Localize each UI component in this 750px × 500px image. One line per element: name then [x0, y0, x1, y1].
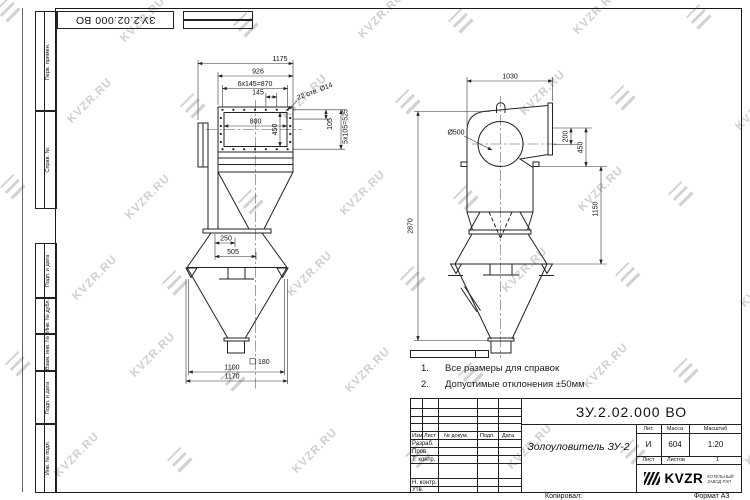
margin-label: Перв. примен.	[45, 43, 51, 80]
sheets-value: 1	[716, 457, 719, 463]
grid-line	[411, 408, 521, 409]
col-izm: Изм.	[412, 433, 424, 439]
scale-label: Масштаб	[689, 424, 742, 433]
title-block-extension	[410, 350, 489, 358]
logo-subtitle: КОТЕЛЬНЫЙ ЗАВОД РЭП	[707, 474, 733, 484]
col-podp: Подп.	[480, 433, 495, 439]
logo-text: KVZR	[664, 471, 703, 486]
row-t-kontr: Т. контр.	[412, 457, 435, 463]
note-1: 1.Все размеры для справок	[421, 363, 559, 374]
note-number: 1.	[421, 363, 445, 374]
row-utv: Утв.	[412, 487, 423, 493]
margin-box-vzam-inv: Взам. инв. №	[35, 333, 57, 372]
lit-value: И	[636, 433, 661, 456]
row-n-kontr: Н. контр.	[412, 480, 437, 486]
product-name: Золоуловитель ЗУ-2	[521, 424, 636, 469]
note-number: 2.	[421, 379, 445, 390]
note-2: 2.Допустимые отклонения ±50мм	[421, 379, 585, 390]
grid-line	[411, 486, 521, 487]
margin-box-perv-primen: Перв. примен.	[35, 11, 57, 112]
drawing-sheet: KVZR.RUKVZR.RUKVZR.RUKVZR.RUKVZR.RUKVZR.…	[0, 0, 750, 500]
company-logo: KVZR КОТЕЛЬНЫЙ ЗАВОД РЭП	[636, 464, 742, 493]
margin-label: Справ. №	[45, 147, 51, 172]
col-docnum: № докум.	[444, 433, 468, 439]
margin-box-inv-podl: Инв. № подл.	[35, 423, 57, 493]
margin-box-podp-data-1: Подп. и дата	[35, 243, 57, 299]
margin-label: Подп. и дата	[45, 381, 51, 413]
format-label: Формат А3	[694, 493, 729, 500]
row-razrab: Разраб.	[412, 441, 434, 447]
margin-label: Инв. № подл.	[45, 441, 51, 475]
title-block-doc-number: ЗУ.2.02.000 ВО	[521, 399, 742, 424]
title-block: Изм. Лист № докум. Подп. Дата Разраб. Пр…	[410, 398, 742, 493]
mass-label: Масса	[661, 424, 689, 433]
corner-stamp-cell	[183, 19, 253, 29]
margin-box-sprav-no: Справ. №	[35, 110, 57, 209]
margin-label: Взам. инв. №	[45, 335, 51, 369]
corner-stamp-doc-number: ЗУ.2.02.000 ВО	[75, 14, 155, 26]
sheets-label: Листов	[667, 457, 685, 463]
scale-value: 1:20	[689, 433, 742, 456]
margin-box-podp-data-2: Подп. и дата	[35, 370, 57, 425]
logo-sub-line2: ЗАВОД РЭП	[707, 479, 731, 484]
margin-label: Инв. № дубл.	[45, 299, 51, 333]
sheet-label: Лист	[636, 456, 661, 464]
grid-line	[411, 463, 521, 464]
margin-box-inv-dubl: Инв. № дубл.	[35, 297, 57, 335]
copied-label: Копировал:	[545, 493, 582, 500]
lit-label: Лит.	[636, 424, 661, 433]
mass-value: 604	[661, 433, 689, 456]
corner-stamp: ЗУ.2.02.000 ВО	[57, 11, 174, 29]
note-text: Допустимые отклонения ±50мм	[445, 379, 585, 390]
sheet-edge-line	[22, 8, 23, 492]
col-data: Дата	[502, 433, 514, 439]
kvzr-logo-icon	[644, 472, 660, 485]
grid-line	[411, 423, 521, 424]
grid-line	[411, 416, 521, 417]
row-prov: Пров.	[412, 449, 428, 455]
margin-label: Подп. и дата	[45, 255, 51, 287]
grid-line	[475, 351, 476, 357]
note-text: Все размеры для справок	[445, 363, 559, 374]
col-list: Лист	[424, 433, 436, 439]
